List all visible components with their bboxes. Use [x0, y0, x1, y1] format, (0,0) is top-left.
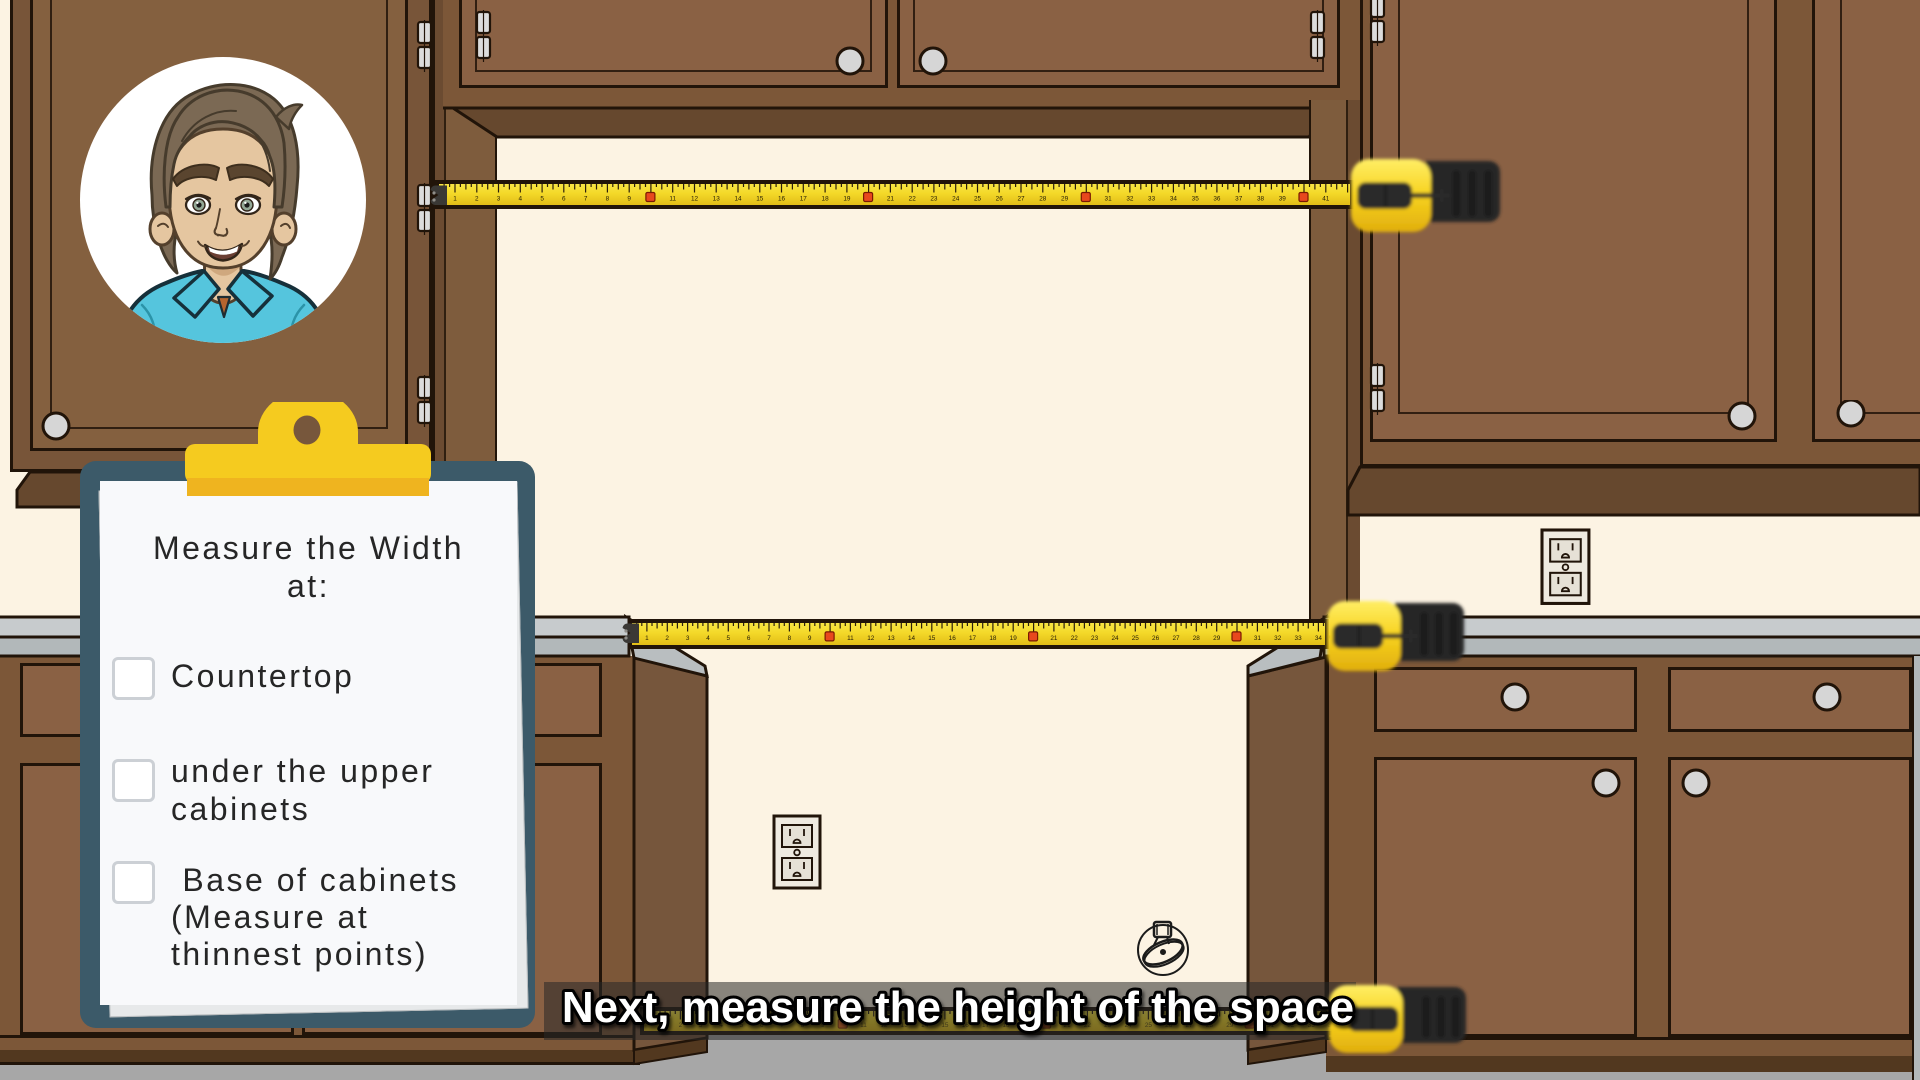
- svg-text:4: 4: [706, 635, 710, 642]
- svg-text:8: 8: [606, 196, 610, 203]
- svg-text:26: 26: [1152, 635, 1160, 642]
- svg-text:21: 21: [1050, 635, 1058, 642]
- svg-text:34: 34: [1315, 635, 1323, 642]
- svg-text:9: 9: [808, 635, 812, 642]
- svg-text:21: 21: [887, 196, 895, 203]
- svg-text:3: 3: [497, 196, 501, 203]
- svg-text:38: 38: [1257, 196, 1265, 203]
- svg-text:25: 25: [974, 196, 982, 203]
- svg-text:27: 27: [1017, 196, 1025, 203]
- svg-text:19: 19: [843, 196, 851, 203]
- svg-text:19: 19: [1010, 635, 1018, 642]
- svg-text:7: 7: [767, 635, 771, 642]
- svg-text:32: 32: [1126, 196, 1134, 203]
- svg-text:23: 23: [1091, 635, 1099, 642]
- svg-text:37: 37: [1235, 196, 1243, 203]
- svg-text:35: 35: [1192, 196, 1200, 203]
- svg-text:25: 25: [1132, 635, 1140, 642]
- svg-text:14: 14: [734, 196, 742, 203]
- svg-text:5: 5: [540, 196, 544, 203]
- svg-text:2: 2: [475, 196, 479, 203]
- svg-text:15: 15: [756, 196, 764, 203]
- svg-text:22: 22: [1071, 635, 1079, 642]
- svg-text:15: 15: [928, 635, 936, 642]
- svg-text:18: 18: [989, 635, 997, 642]
- svg-text:6: 6: [562, 196, 566, 203]
- svg-text:31: 31: [1254, 635, 1262, 642]
- svg-text:11: 11: [669, 196, 676, 203]
- svg-text:16: 16: [778, 196, 786, 203]
- svg-text:29: 29: [1061, 196, 1069, 203]
- svg-text:24: 24: [952, 196, 960, 203]
- svg-text:11: 11: [847, 635, 854, 642]
- svg-text:41: 41: [1322, 196, 1330, 203]
- svg-text:13: 13: [713, 196, 721, 203]
- svg-text:24: 24: [1111, 635, 1119, 642]
- svg-text:8: 8: [788, 635, 792, 642]
- svg-text:12: 12: [867, 635, 875, 642]
- svg-text:28: 28: [1039, 196, 1047, 203]
- svg-text:6: 6: [747, 635, 751, 642]
- svg-text:17: 17: [969, 635, 977, 642]
- svg-text:9: 9: [627, 196, 631, 203]
- svg-text:13: 13: [888, 635, 896, 642]
- svg-text:26: 26: [996, 196, 1004, 203]
- svg-text:39: 39: [1279, 196, 1287, 203]
- svg-text:34: 34: [1170, 196, 1178, 203]
- svg-text:18: 18: [822, 196, 830, 203]
- svg-text:1: 1: [645, 635, 649, 642]
- svg-text:28: 28: [1193, 635, 1201, 642]
- svg-text:2: 2: [665, 635, 669, 642]
- svg-text:14: 14: [908, 635, 916, 642]
- svg-text:7: 7: [584, 196, 588, 203]
- svg-text:22: 22: [909, 196, 917, 203]
- svg-text:17: 17: [800, 196, 808, 203]
- svg-text:23: 23: [930, 196, 938, 203]
- svg-text:3: 3: [686, 635, 690, 642]
- svg-text:31: 31: [1105, 196, 1113, 203]
- svg-text:Next, measure the height of th: Next, measure the height of the space: [562, 983, 1354, 1032]
- svg-text:5: 5: [727, 635, 731, 642]
- svg-text:12: 12: [691, 196, 699, 203]
- svg-text:29: 29: [1213, 635, 1221, 642]
- svg-text:1: 1: [453, 196, 457, 203]
- svg-text:33: 33: [1148, 196, 1156, 203]
- svg-text:27: 27: [1172, 635, 1180, 642]
- svg-text:32: 32: [1274, 635, 1282, 642]
- svg-text:33: 33: [1295, 635, 1303, 642]
- svg-text:36: 36: [1213, 196, 1221, 203]
- svg-text:4: 4: [519, 196, 523, 203]
- svg-text:16: 16: [949, 635, 957, 642]
